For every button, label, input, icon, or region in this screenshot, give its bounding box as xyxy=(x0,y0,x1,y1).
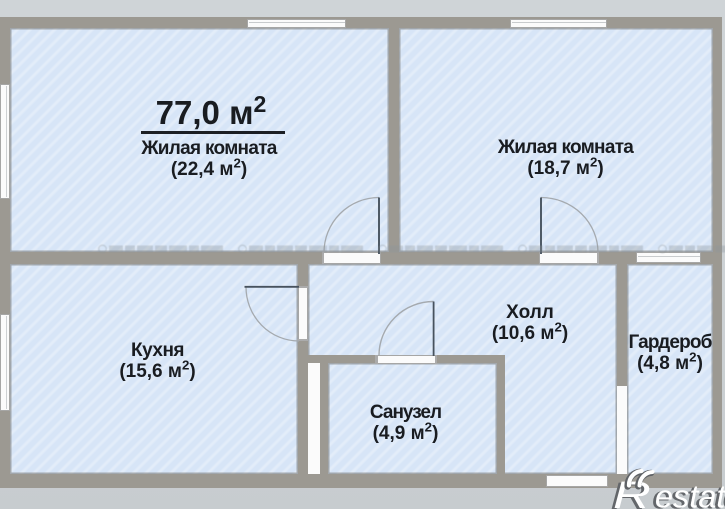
svg-text:estate: estate xyxy=(655,479,725,509)
